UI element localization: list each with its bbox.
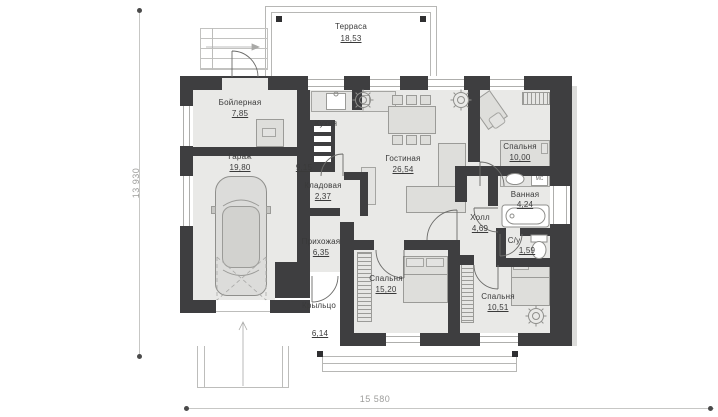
wall-bedroom2-top: [354, 240, 374, 250]
vent-slot: [314, 146, 331, 152]
window: [180, 106, 193, 146]
wall-porch-corner: [275, 262, 310, 298]
window: [550, 186, 570, 224]
room-label-entry: Прихожая: [300, 237, 342, 246]
terrace-steps: [200, 28, 268, 70]
wall-bottom: [340, 333, 572, 346]
room-area-living: 26,54: [378, 165, 428, 174]
wall-bathroom-left: [488, 176, 498, 206]
room-label-bathroom: Ванная: [502, 190, 548, 199]
blanket-line: [404, 274, 447, 275]
room-area-kitchen: 9,15: [288, 163, 320, 172]
room-label-bedroom1: Спальня: [496, 142, 544, 151]
dimension-marker: [137, 8, 142, 13]
car-roof: [222, 206, 260, 268]
window: [490, 76, 524, 90]
wall-bedroom3-top: [498, 255, 506, 265]
building-shadow: [572, 86, 577, 346]
vent-slot: [314, 156, 331, 162]
porch-post: [317, 351, 323, 357]
room-area-wc: 1,59: [512, 246, 542, 255]
kitchen-sink: [326, 93, 346, 110]
wardrobe: [522, 92, 550, 105]
room-area-garage: 19,80: [210, 163, 270, 172]
floor-plan-canvas: Терраса 18,53 МС: [0, 0, 718, 417]
room-area-bathroom: 4,24: [502, 200, 548, 209]
wall-bedroom3-top: [460, 255, 474, 265]
wall-bathroom-top: [466, 166, 550, 176]
room-area-bedroom1: 10,00: [496, 153, 544, 162]
dimension-height: 13 930: [131, 158, 141, 208]
washer-label: МС: [536, 176, 544, 182]
window: [308, 76, 344, 90]
dining-table: [388, 106, 436, 134]
terrace-area: 18,53: [311, 34, 391, 43]
dining-chair: [392, 135, 403, 145]
room-label-bedroom3: Спальня: [474, 292, 522, 301]
car-mirror: [211, 206, 216, 214]
room-label-pantry: Кладовая: [298, 181, 348, 190]
dimension-width: 15 580: [340, 394, 410, 404]
terrace-post: [276, 16, 282, 22]
dining-chair: [406, 95, 417, 105]
room-label-porch: Крыльцо: [296, 301, 342, 310]
room-label-hall: Холл: [462, 213, 498, 222]
room-label-kitchen: Кухня: [306, 119, 346, 128]
porch-post: [512, 351, 518, 357]
dining-chair: [406, 135, 417, 145]
garage-door-line: [216, 311, 270, 312]
dining-chair: [420, 135, 431, 145]
wall-pantry-bottom: [297, 208, 340, 216]
porch-step-inner: [322, 356, 517, 364]
room-area-bedroom2: 15,20: [362, 285, 410, 294]
window: [180, 176, 193, 226]
car-mirror: [266, 206, 271, 214]
terrace-label: Терраса: [311, 22, 391, 31]
wall-wc-top: [520, 228, 552, 236]
room-area-porch: 6,14: [300, 329, 340, 338]
wall-bedrooms-divider: [448, 250, 460, 333]
terrace-post: [420, 16, 426, 22]
dimension-line-horizontal: [184, 408, 714, 409]
room-area-entry: 6,35: [300, 248, 342, 257]
room-label-wc: С/у: [502, 236, 526, 245]
room-area-bedroom3: 10,51: [474, 303, 522, 312]
room-area-boiler: 7,85: [205, 109, 275, 118]
pillow: [426, 258, 444, 267]
dimension-marker: [708, 406, 713, 411]
wall-living-bedroom1: [468, 90, 480, 162]
window: [386, 333, 420, 346]
vent-slot: [314, 136, 331, 142]
room-label-bedroom2: Спальня: [362, 274, 410, 283]
room-label-boiler: Бойлерная: [205, 98, 275, 107]
window: [370, 76, 400, 90]
wall-kitchen-stub: [352, 90, 362, 110]
wall-garage-front: [180, 300, 216, 313]
dimension-marker: [184, 406, 189, 411]
window: [428, 76, 464, 90]
dining-chair: [392, 95, 403, 105]
wardrobe: [461, 263, 474, 323]
room-label-living: Гостиная: [378, 154, 428, 163]
dimension-marker: [137, 354, 142, 359]
boiler-detail: [262, 128, 276, 137]
dining-chair: [420, 95, 431, 105]
room-area-hall: 4,69: [462, 224, 498, 233]
window: [480, 333, 518, 346]
wall-entry-right: [340, 222, 354, 333]
steps-divider: [212, 28, 213, 70]
blanket-line: [512, 277, 549, 278]
wall-bedroom2-top: [404, 240, 460, 250]
wall-pantry-top: [344, 172, 368, 180]
room-label-garage: Гараж: [210, 152, 270, 161]
pillow: [406, 258, 424, 267]
room-area-pantry: 2,37: [298, 192, 348, 201]
boiler-door-opening: [222, 78, 268, 90]
